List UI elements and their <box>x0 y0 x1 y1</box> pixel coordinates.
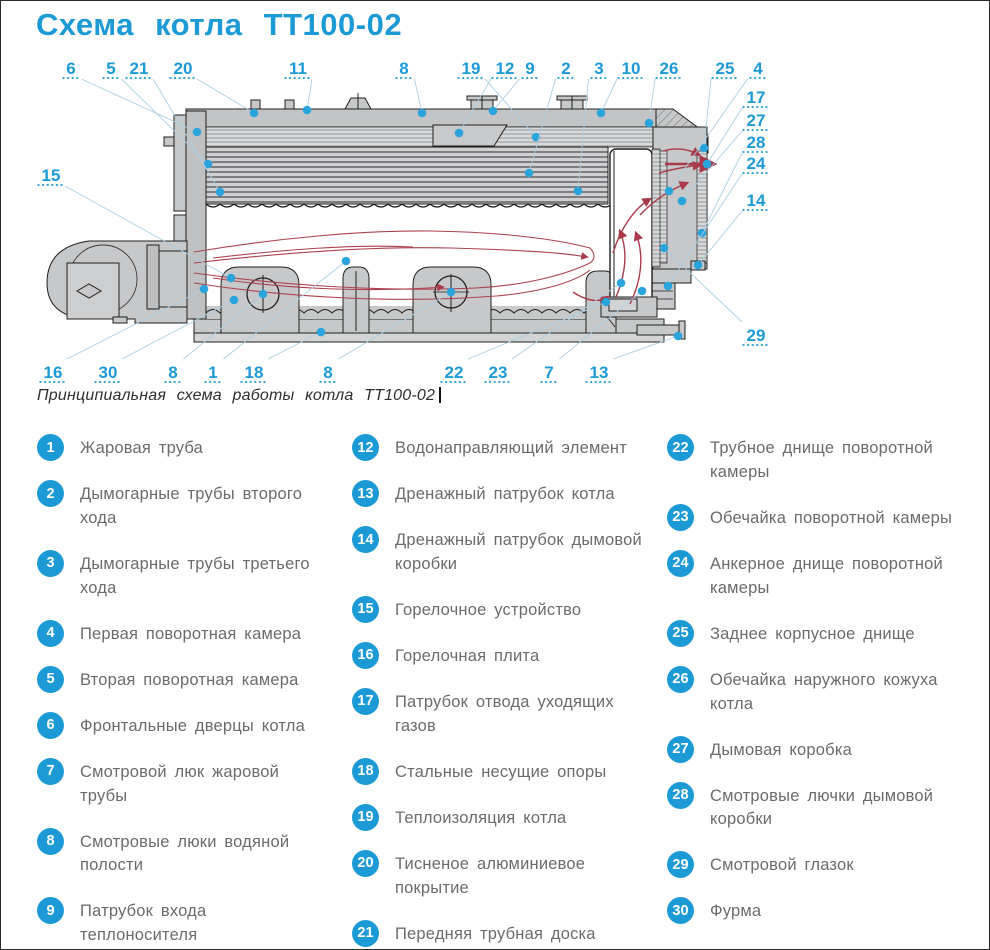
callout-dot <box>665 187 674 196</box>
legend-item-label: Обечайка поворотной камеры <box>710 504 952 531</box>
legend-number-badge: 26 <box>667 666 694 693</box>
callout-dot <box>418 109 427 118</box>
legend-item-label: Жаровая труба <box>80 434 203 461</box>
legend-number-badge: 19 <box>352 804 379 831</box>
legend-item-label: Анкерное днище поворотной камеры <box>710 550 960 601</box>
legend-item-label: Дымогарные трубы второго хода <box>80 480 330 531</box>
callout-number: 27 <box>747 111 766 130</box>
legend-number-badge: 21 <box>352 920 379 947</box>
legend-item-label: Смотровой люк жаровой трубы <box>80 758 330 809</box>
tube-bundle <box>206 147 608 204</box>
callout-dot <box>597 109 606 118</box>
legend-number-badge: 3 <box>37 550 64 577</box>
legend-number-badge: 14 <box>352 526 379 553</box>
legend-column: 22Трубное днище поворотной камеры23Обеча… <box>667 434 967 950</box>
legend-item-label: Дренажный патрубок котла <box>395 480 615 507</box>
turning-chamber <box>601 149 660 317</box>
callout-leader-line <box>415 79 423 113</box>
boiler-schematic: 6521201181912923102625417272824142915163… <box>1 1 990 426</box>
legend-item-label: Дымовая коробка <box>710 736 852 763</box>
legend-item-label: Патрубок отвода уходящих газов <box>395 688 645 739</box>
legend-number-badge: 20 <box>352 850 379 877</box>
legend-item: 2Дымогарные трубы второго хода <box>37 480 352 531</box>
legend-item-label: Обечайка наружного кожуха котла <box>710 666 960 717</box>
legend-number-badge: 25 <box>667 620 694 647</box>
legend-item: 18Стальные несущие опоры <box>352 758 667 785</box>
legend-number-badge: 23 <box>667 504 694 531</box>
callout-dot <box>259 290 268 299</box>
legend-item: 23Обечайка поворотной камеры <box>667 504 967 531</box>
callout-number: 17 <box>747 88 766 107</box>
legend-item: 24Анкерное днище поворотной камеры <box>667 550 967 601</box>
callout-dot <box>678 197 687 206</box>
legend-column: 1Жаровая труба2Дымогарные трубы второго … <box>37 434 352 950</box>
callout-number: 19 <box>462 59 481 78</box>
legend-item: 20Тисненое алюминиевое покрытие <box>352 850 667 901</box>
legend-item: 26Обечайка наружного кожуха котла <box>667 666 967 717</box>
callout-number: 12 <box>496 59 515 78</box>
callout-dot <box>602 298 611 307</box>
callout-dot <box>664 282 673 291</box>
legend-item: 29Смотровой глазок <box>667 851 967 878</box>
legend-item-label: Дренажный патрубок дымовой коробки <box>395 526 645 577</box>
legend-number-badge: 17 <box>352 688 379 715</box>
callout-leader-line <box>307 79 312 110</box>
callout-number: 8 <box>399 59 408 78</box>
callout-number: 13 <box>590 363 609 382</box>
callout-number: 5 <box>106 59 115 78</box>
callout-dot <box>703 160 712 169</box>
base-rail-lower <box>194 333 664 342</box>
legend-item: 15Горелочное устройство <box>352 596 667 623</box>
legend-item-label: Фурма <box>710 897 761 924</box>
callout-number: 25 <box>716 59 735 78</box>
callout-dot <box>489 107 498 116</box>
legend-number-badge: 8 <box>37 828 64 855</box>
legend-number-badge: 7 <box>37 758 64 785</box>
callout-leader-line <box>601 79 617 113</box>
insulation-band <box>204 127 656 147</box>
legend-number-badge: 24 <box>667 550 694 577</box>
legend-item-label: Смотровые лючки дымовой коробки <box>710 782 960 833</box>
legend-item: 28Смотровые лючки дымовой коробки <box>667 782 967 833</box>
callout-number: 4 <box>753 59 763 78</box>
legend-number-badge: 15 <box>352 596 379 623</box>
callout-dot <box>193 128 202 137</box>
callout-number: 11 <box>289 59 307 78</box>
legend-item-label: Смотровой глазок <box>710 851 854 878</box>
legend-item: 8Смотровые люки водяной полости <box>37 828 352 879</box>
legend-number-badge: 5 <box>37 666 64 693</box>
callout-dot <box>200 285 209 294</box>
legend-number-badge: 1 <box>37 434 64 461</box>
callout-dot <box>574 187 583 196</box>
legend-item: 5Вторая поворотная камера <box>37 666 352 693</box>
callout-number: 23 <box>489 363 508 382</box>
callout-dot <box>645 119 654 128</box>
legend: 1Жаровая труба2Дымогарные трубы второго … <box>37 434 981 950</box>
diagram-caption: Принципиальная схема работы котла ТТ100-… <box>37 387 441 405</box>
legend-item-label: Фронтальные дверцы котла <box>80 712 305 739</box>
callout-dot <box>216 188 225 197</box>
legend-item: 3Дымогарные трубы третьего хода <box>37 550 352 601</box>
callout-number: 8 <box>168 363 177 382</box>
callout-number: 20 <box>174 59 193 78</box>
callout-dot <box>674 332 683 341</box>
callout-dot <box>317 328 326 337</box>
legend-item: 22Трубное днище поворотной камеры <box>667 434 967 485</box>
callout-number: 28 <box>747 133 766 152</box>
legend-number-badge: 12 <box>352 434 379 461</box>
legend-number-badge: 6 <box>37 712 64 739</box>
legend-item: 6Фронтальные дверцы котла <box>37 712 352 739</box>
callout-number: 26 <box>660 59 679 78</box>
legend-item-label: Смотровые люки водяной полости <box>80 828 330 879</box>
legend-item-label: Тисненое алюминиевое покрытие <box>395 850 645 901</box>
legend-item: 4Первая поворотная камера <box>37 620 352 647</box>
legend-item: 27Дымовая коробка <box>667 736 967 763</box>
legend-item-label: Горелочная плита <box>395 642 539 669</box>
legend-item-label: Водонаправляющий элемент <box>395 434 627 461</box>
burner-unit <box>47 241 187 323</box>
legend-item-label: Первая поворотная камера <box>80 620 301 647</box>
legend-item: 25Заднее корпусное днище <box>667 620 967 647</box>
legend-number-badge: 9 <box>37 897 64 924</box>
callout-number: 30 <box>99 363 118 382</box>
legend-item: 7Смотровой люк жаровой трубы <box>37 758 352 809</box>
legend-item-label: Вторая поворотная камера <box>80 666 299 693</box>
callout-dot <box>617 279 626 288</box>
callout-number: 7 <box>544 363 553 382</box>
callout-number: 1 <box>208 363 217 382</box>
legend-item: 9Патрубок входа теплоносителя <box>37 897 352 948</box>
page: 6521201181912923102625417272824142915163… <box>0 0 990 950</box>
callout-dot <box>342 257 351 266</box>
legend-item: 21Передняя трубная доска <box>352 920 667 947</box>
callout-dot <box>227 274 236 283</box>
legend-item-label: Трубное днище поворотной камеры <box>710 434 960 485</box>
legend-item: 30Фурма <box>667 897 967 924</box>
callout-number: 21 <box>130 59 149 78</box>
water-director <box>433 125 507 146</box>
callout-number: 29 <box>747 326 766 345</box>
callout-number: 15 <box>42 166 61 185</box>
callout-number: 18 <box>245 363 264 382</box>
callout-dot <box>303 106 312 115</box>
callout-number: 9 <box>525 59 534 78</box>
legend-item: 14Дренажный патрубок дымовой коробки <box>352 526 667 577</box>
callout-dot <box>455 129 464 138</box>
legend-item: 12Водонаправляющий элемент <box>352 434 667 461</box>
callout-dot <box>694 261 703 270</box>
callout-number: 8 <box>323 363 332 382</box>
legend-number-badge: 27 <box>667 736 694 763</box>
callout-number: 3 <box>594 59 603 78</box>
callout-number: 2 <box>561 59 570 78</box>
legend-number-badge: 2 <box>37 480 64 507</box>
legend-number-badge: 28 <box>667 782 694 809</box>
callout-dot <box>525 169 534 178</box>
callout-number: 10 <box>622 59 641 78</box>
legend-item-label: Теплоизоляция котла <box>395 804 566 831</box>
legend-item-label: Передняя трубная доска <box>395 920 596 947</box>
callout-leader-line <box>197 79 254 113</box>
legend-number-badge: 22 <box>667 434 694 461</box>
callout-number: 16 <box>44 363 63 382</box>
legend-item-label: Дымогарные трубы третьего хода <box>80 550 330 601</box>
legend-item: 19Теплоизоляция котла <box>352 804 667 831</box>
callout-dot <box>447 288 456 297</box>
callout-number: 6 <box>66 59 75 78</box>
callout-dot <box>638 287 647 296</box>
legend-number-badge: 16 <box>352 642 379 669</box>
callout-number: 14 <box>747 191 766 210</box>
callout-dot <box>250 109 259 118</box>
callout-number: 24 <box>747 154 766 173</box>
legend-item-label: Заднее корпусное днище <box>710 620 915 647</box>
legend-number-badge: 13 <box>352 480 379 507</box>
page-title: Схема котла ТТ100-02 <box>36 7 402 43</box>
legend-column: 12Водонаправляющий элемент13Дренажный па… <box>352 434 667 950</box>
callout-leader-line <box>707 108 742 164</box>
callout-dot <box>660 244 669 253</box>
callout-leader-line <box>493 79 520 111</box>
legend-item-label: Горелочное устройство <box>395 596 581 623</box>
legend-item: 17Патрубок отвода уходящих газов <box>352 688 667 739</box>
legend-number-badge: 29 <box>667 851 694 878</box>
legend-number-badge: 30 <box>667 897 694 924</box>
legend-item: 1Жаровая труба <box>37 434 352 461</box>
legend-number-badge: 18 <box>352 758 379 785</box>
legend-item: 13Дренажный патрубок котла <box>352 480 667 507</box>
legend-item-label: Патрубок входа теплоносителя <box>80 897 330 948</box>
callout-number: 22 <box>445 363 464 382</box>
legend-item: 16Горелочная плита <box>352 642 667 669</box>
callout-dot <box>230 296 239 305</box>
legend-number-badge: 4 <box>37 620 64 647</box>
legend-item-label: Стальные несущие опоры <box>395 758 607 785</box>
